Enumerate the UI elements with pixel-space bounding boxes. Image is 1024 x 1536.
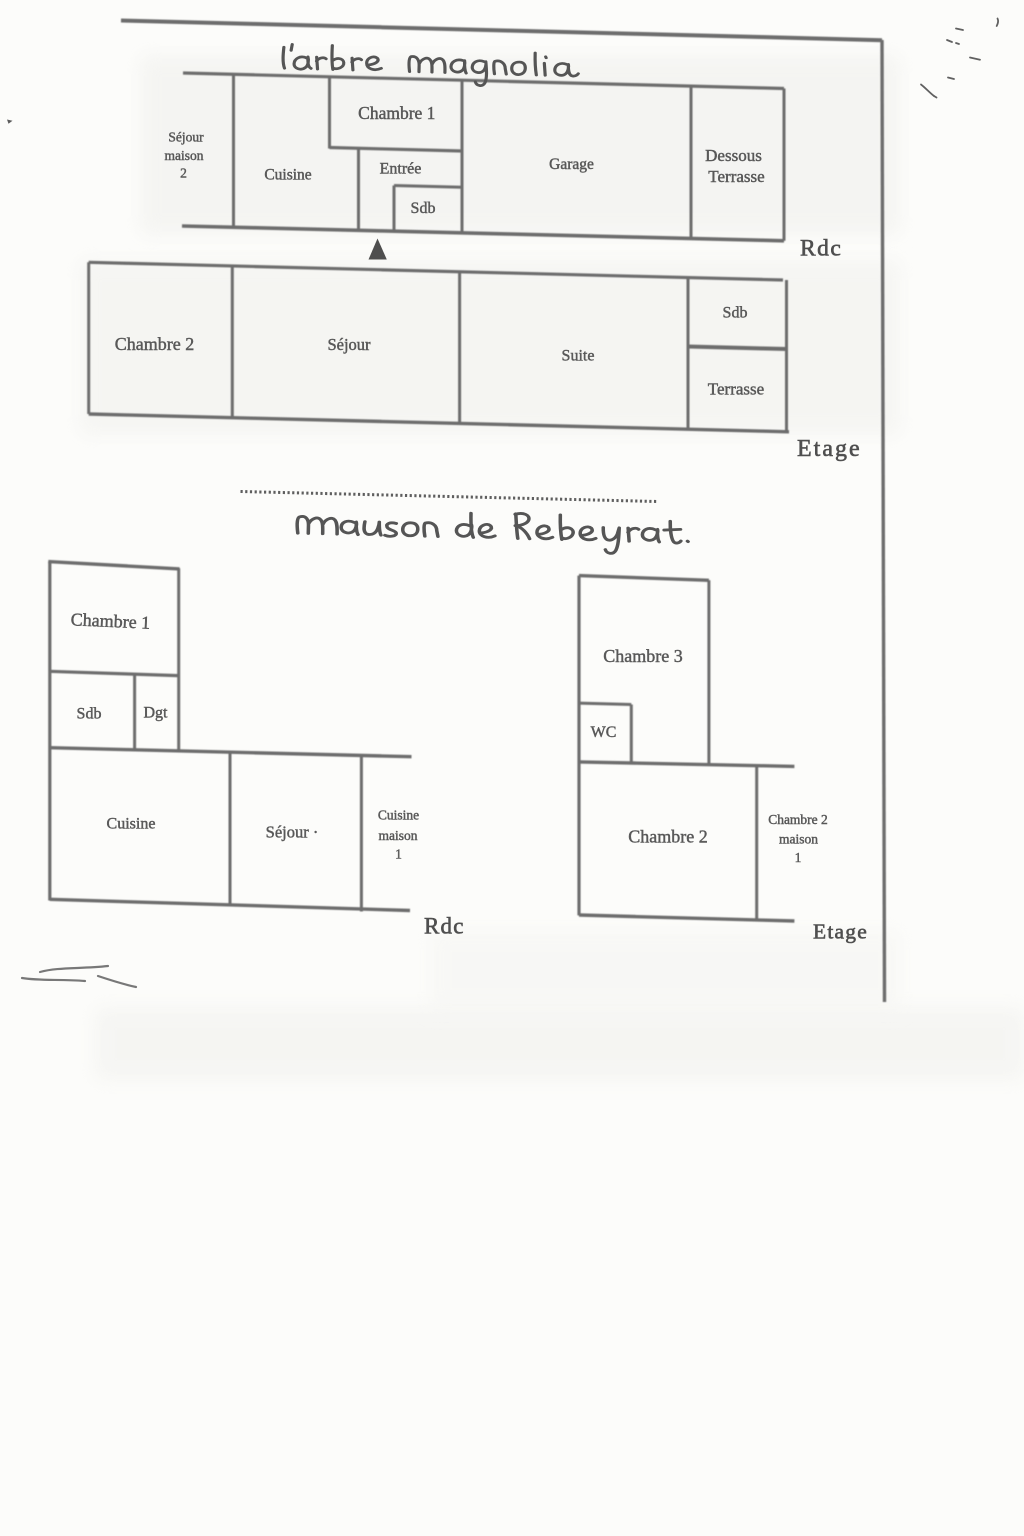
svg-text:Séjour: Séjour <box>327 335 371 354</box>
svg-text:Séjour: Séjour <box>168 130 204 145</box>
svg-text:Etage: Etage <box>813 920 868 944</box>
svg-text:2: 2 <box>180 166 187 181</box>
svg-text:Cuisine: Cuisine <box>264 166 311 183</box>
svg-text:Entrée: Entrée <box>380 161 422 178</box>
svg-text:Cuisine: Cuisine <box>378 808 419 823</box>
svg-text:maison: maison <box>379 828 418 843</box>
svg-text:Etage: Etage <box>797 436 862 462</box>
svg-text:Séjour ·: Séjour · <box>266 823 319 842</box>
svg-text:Sdb: Sdb <box>411 200 436 217</box>
svg-text:Sdb: Sdb <box>77 706 102 723</box>
svg-text:Chambre 2: Chambre 2 <box>115 334 194 354</box>
svg-text:Chambre 2: Chambre 2 <box>768 812 828 827</box>
svg-text:Chambre 1: Chambre 1 <box>70 609 150 632</box>
svg-text:Cuisine: Cuisine <box>107 816 156 833</box>
svg-text:Rdc: Rdc <box>424 914 465 939</box>
svg-text:Dessous: Dessous <box>705 146 762 165</box>
svg-text:maison: maison <box>165 148 204 163</box>
svg-text:1: 1 <box>795 850 802 865</box>
svg-text:Dgt: Dgt <box>144 705 169 722</box>
svg-text:Sdb: Sdb <box>723 305 748 322</box>
svg-text:Terrasse: Terrasse <box>708 167 764 186</box>
svg-text:Chambre 2: Chambre 2 <box>628 827 707 847</box>
svg-text:Garage: Garage <box>549 156 594 173</box>
svg-text:maison: maison <box>779 832 818 847</box>
svg-text:WC: WC <box>591 724 617 741</box>
svg-text:Chambre 1: Chambre 1 <box>358 103 435 123</box>
svg-text:1: 1 <box>395 847 402 862</box>
svg-text:Chambre 3: Chambre 3 <box>603 646 682 666</box>
svg-text:Suite: Suite <box>562 347 595 364</box>
svg-text:Terrasse: Terrasse <box>708 380 764 399</box>
svg-text:Rdc: Rdc <box>800 236 842 262</box>
